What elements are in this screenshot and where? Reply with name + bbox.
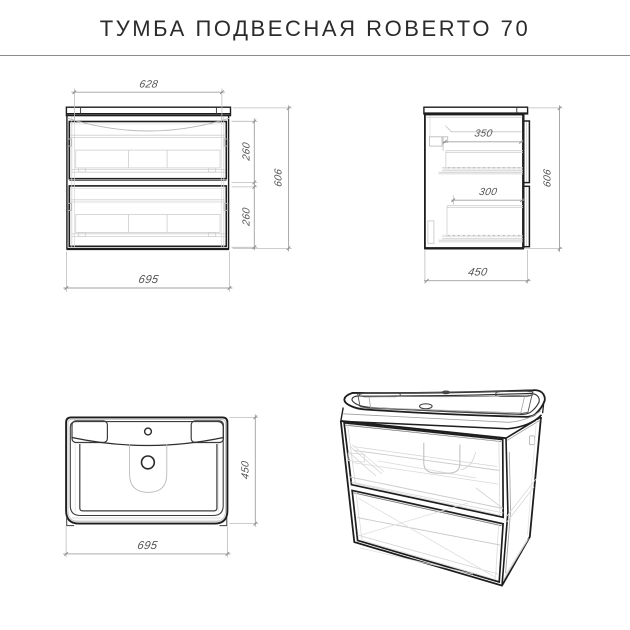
- svg-text:260: 260: [242, 207, 253, 228]
- svg-text:695: 695: [137, 274, 159, 286]
- svg-text:450: 450: [467, 266, 489, 278]
- svg-text:450: 450: [241, 460, 252, 480]
- svg-text:606: 606: [543, 168, 554, 188]
- svg-text:628: 628: [138, 79, 159, 91]
- svg-text:350: 350: [474, 129, 494, 140]
- svg-text:260: 260: [242, 141, 253, 162]
- svg-text:695: 695: [136, 540, 158, 552]
- svg-text:606: 606: [274, 168, 285, 188]
- svg-text:300: 300: [478, 187, 498, 198]
